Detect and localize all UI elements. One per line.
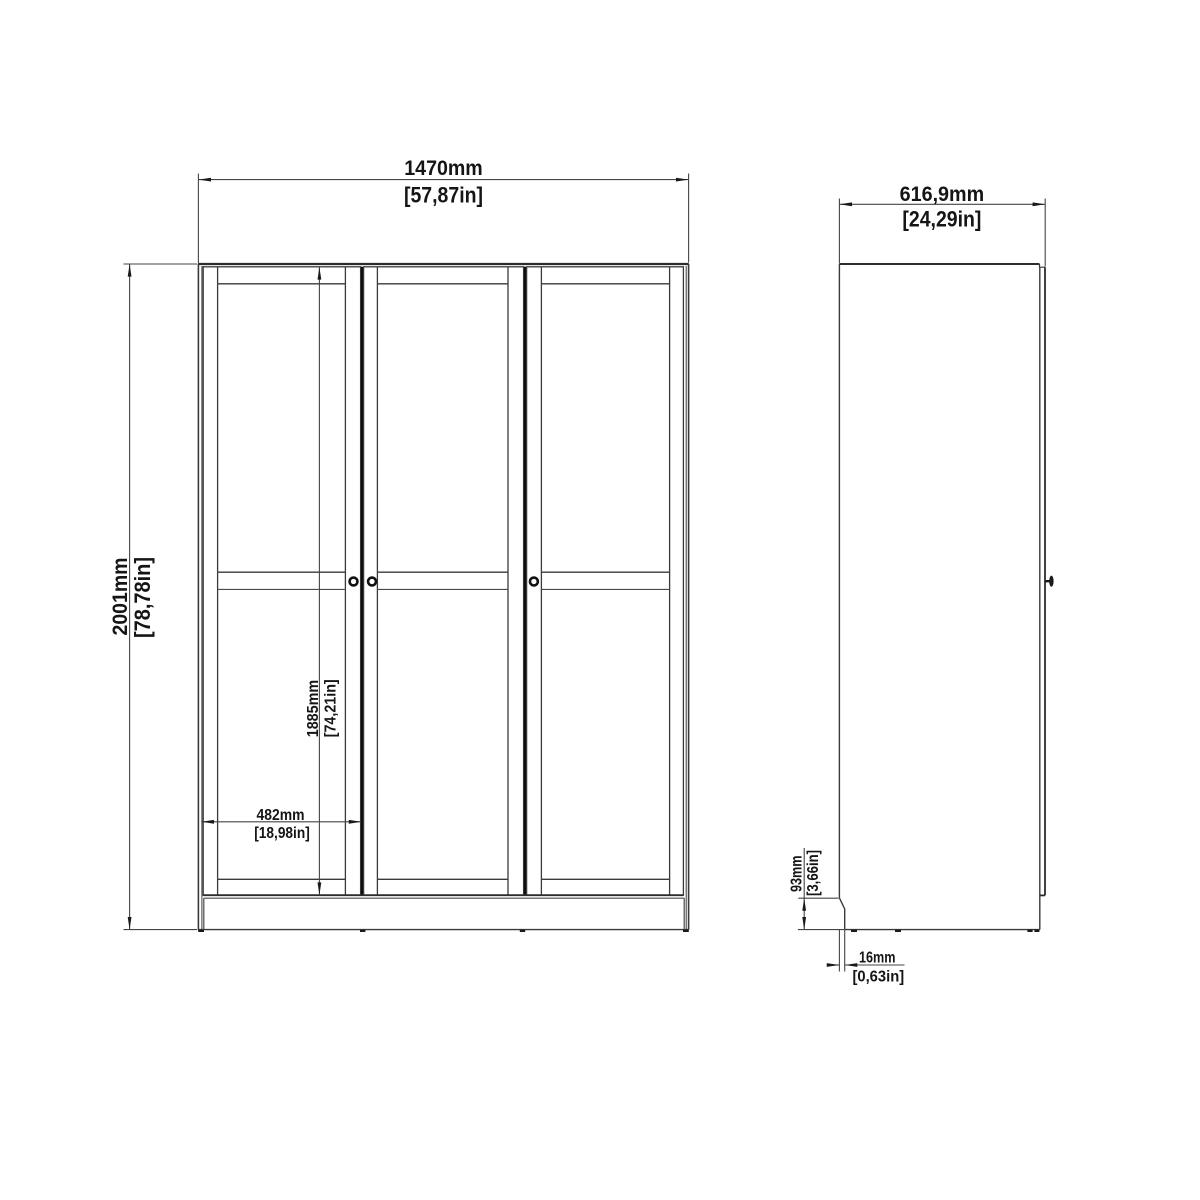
svg-text:[18,98in]: [18,98in]	[254, 825, 310, 842]
svg-text:2001mm: 2001mm	[109, 558, 132, 636]
svg-text:[74,21in]: [74,21in]	[323, 679, 340, 737]
svg-text:[3,66in]: [3,66in]	[805, 850, 822, 896]
svg-text:1470mm: 1470mm	[404, 157, 483, 180]
svg-text:482mm: 482mm	[257, 807, 305, 824]
svg-text:[78,78in]: [78,78in]	[130, 557, 155, 638]
svg-text:93mm: 93mm	[789, 856, 806, 893]
svg-text:[24,29in]: [24,29in]	[902, 207, 981, 232]
svg-text:[57,87in]: [57,87in]	[404, 182, 483, 207]
svg-text:[0,63in]: [0,63in]	[852, 969, 904, 986]
svg-text:16mm: 16mm	[859, 949, 896, 966]
svg-text:1885mm: 1885mm	[305, 680, 322, 738]
svg-text:616,9mm: 616,9mm	[900, 183, 985, 206]
